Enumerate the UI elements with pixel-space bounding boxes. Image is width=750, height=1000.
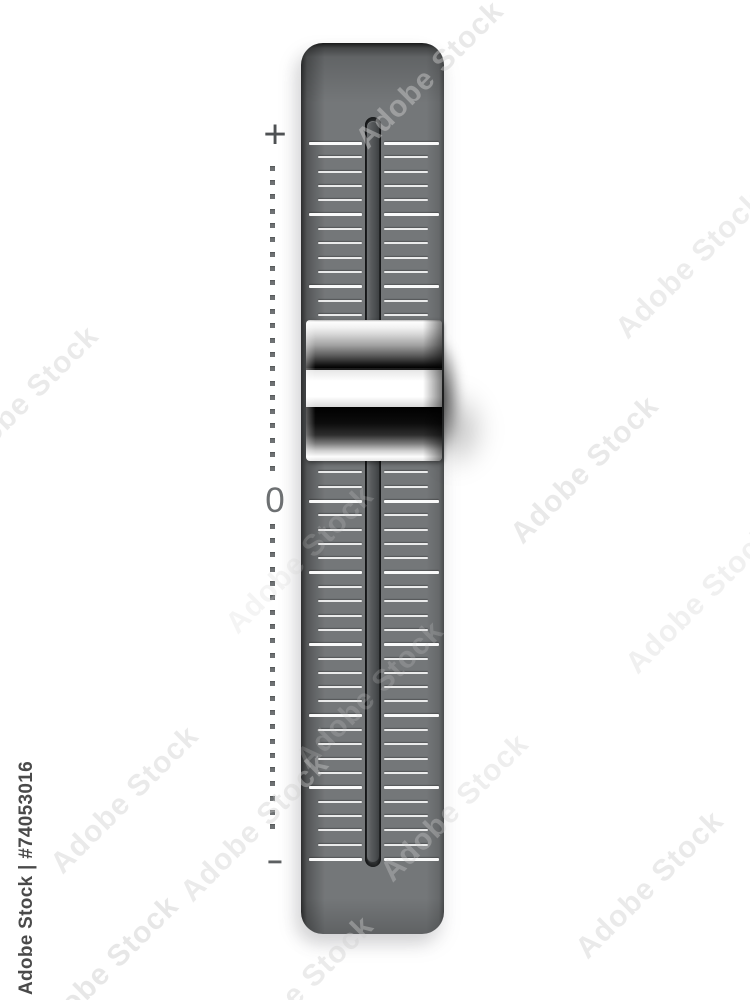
minor-tick bbox=[384, 844, 428, 846]
major-tick bbox=[384, 285, 439, 288]
zero-label: 0 bbox=[265, 481, 284, 521]
minor-tick bbox=[384, 257, 428, 259]
minor-tick bbox=[318, 600, 362, 602]
scale-dot bbox=[270, 423, 275, 428]
scale-dot bbox=[270, 524, 275, 529]
minor-tick bbox=[384, 772, 428, 774]
minor-tick bbox=[384, 156, 428, 158]
minor-tick bbox=[384, 557, 428, 559]
minor-tick bbox=[318, 486, 362, 488]
minor-tick bbox=[318, 557, 362, 559]
scale-dot bbox=[270, 581, 275, 586]
minor-tick bbox=[318, 672, 362, 674]
major-tick bbox=[384, 213, 439, 216]
scale-dot bbox=[270, 595, 275, 600]
minor-tick bbox=[318, 844, 362, 846]
scale-dot bbox=[270, 753, 275, 758]
scale-dot bbox=[270, 295, 275, 300]
stock-image-canvas: + 0 − Adobe StockAdobe StockAdobe StockA… bbox=[0, 0, 750, 1000]
scale-dot bbox=[270, 309, 275, 314]
scale-dot bbox=[270, 781, 275, 786]
major-tick bbox=[309, 786, 362, 789]
major-tick bbox=[309, 643, 362, 646]
scale-dot bbox=[270, 209, 275, 214]
minor-tick bbox=[384, 185, 428, 187]
scale-dot bbox=[270, 395, 275, 400]
adobe-stock-watermark: Adobe Stock bbox=[24, 889, 185, 1000]
scale-dot bbox=[270, 466, 275, 471]
knob-cast-shadow bbox=[437, 325, 489, 475]
major-tick bbox=[309, 714, 362, 717]
minor-tick bbox=[318, 629, 362, 631]
adobe-stock-watermark: Adobe Stock bbox=[569, 804, 730, 965]
scale-dot bbox=[270, 810, 275, 815]
minor-tick bbox=[384, 729, 428, 731]
scale-dot bbox=[270, 638, 275, 643]
minor-tick bbox=[384, 801, 428, 803]
scale-dot bbox=[270, 338, 275, 343]
scale-dot bbox=[270, 252, 275, 257]
scale-dot bbox=[270, 767, 275, 772]
fader-knob-handle[interactable] bbox=[306, 320, 442, 461]
minor-tick bbox=[384, 543, 428, 545]
minor-tick bbox=[384, 629, 428, 631]
minor-tick bbox=[318, 314, 362, 316]
scale-dot bbox=[270, 223, 275, 228]
scale-dot bbox=[270, 824, 275, 829]
minor-tick bbox=[384, 758, 428, 760]
minus-label: − bbox=[267, 847, 282, 878]
minor-tick bbox=[318, 686, 362, 688]
scale-dot bbox=[270, 696, 275, 701]
scale-dot bbox=[270, 194, 275, 199]
major-tick bbox=[309, 500, 362, 503]
scale-dot bbox=[270, 323, 275, 328]
minor-tick bbox=[384, 228, 428, 230]
scale-dot bbox=[270, 724, 275, 729]
scale-dot bbox=[270, 538, 275, 543]
minor-tick bbox=[318, 729, 362, 731]
minor-tick bbox=[318, 199, 362, 201]
scale-dot bbox=[270, 280, 275, 285]
minor-tick bbox=[318, 185, 362, 187]
major-tick bbox=[309, 285, 362, 288]
scale-dot bbox=[270, 180, 275, 185]
minor-tick bbox=[384, 600, 428, 602]
major-tick bbox=[384, 142, 439, 145]
plus-label: + bbox=[263, 113, 286, 158]
minor-tick bbox=[384, 199, 428, 201]
scale-dot bbox=[270, 438, 275, 443]
scale-dot bbox=[270, 681, 275, 686]
knob-chrome-sheen bbox=[306, 320, 442, 461]
scale-dot bbox=[270, 166, 275, 171]
scale-dot bbox=[270, 739, 275, 744]
scale-dot bbox=[270, 352, 275, 357]
minor-tick bbox=[318, 758, 362, 760]
major-tick bbox=[384, 500, 439, 503]
minor-tick bbox=[384, 514, 428, 516]
minor-tick bbox=[318, 156, 362, 158]
scale-dot bbox=[270, 409, 275, 414]
scale-dot bbox=[270, 366, 275, 371]
adobe-stock-watermark: Adobe Stock bbox=[0, 319, 106, 480]
major-tick bbox=[309, 142, 362, 145]
scale-dot bbox=[270, 266, 275, 271]
minor-tick bbox=[384, 486, 428, 488]
minor-tick bbox=[318, 615, 362, 617]
scale-dot bbox=[270, 567, 275, 572]
minor-tick bbox=[384, 615, 428, 617]
major-tick bbox=[309, 213, 362, 216]
fader-rail bbox=[367, 121, 379, 863]
minor-tick bbox=[318, 772, 362, 774]
minor-tick bbox=[318, 242, 362, 244]
adobe-stock-watermark: Adobe Stock bbox=[619, 519, 750, 680]
minor-tick bbox=[384, 171, 428, 173]
scale-dot bbox=[270, 796, 275, 801]
minor-tick bbox=[384, 242, 428, 244]
adobe-stock-watermark: Adobe Stock bbox=[44, 719, 205, 880]
scale-dot bbox=[270, 452, 275, 457]
minor-tick bbox=[318, 171, 362, 173]
major-tick bbox=[384, 714, 439, 717]
minor-tick bbox=[384, 815, 428, 817]
minor-tick bbox=[384, 314, 428, 316]
scale-dot bbox=[270, 653, 275, 658]
minor-tick bbox=[318, 514, 362, 516]
minor-tick bbox=[318, 658, 362, 660]
scale-dot bbox=[270, 237, 275, 242]
adobe-stock-watermark: Adobe Stock bbox=[609, 184, 750, 345]
major-tick bbox=[384, 858, 439, 861]
minor-tick bbox=[384, 672, 428, 674]
minor-tick bbox=[384, 686, 428, 688]
watermark-id-label: Adobe Stock | #74053016 bbox=[16, 761, 38, 995]
scale-dot bbox=[270, 610, 275, 615]
minor-tick bbox=[318, 228, 362, 230]
minor-tick bbox=[318, 815, 362, 817]
minor-tick bbox=[384, 586, 428, 588]
minor-tick bbox=[384, 529, 428, 531]
minor-tick bbox=[318, 543, 362, 545]
major-tick bbox=[384, 571, 439, 574]
minor-tick bbox=[384, 300, 428, 302]
scale-dot bbox=[270, 667, 275, 672]
major-tick bbox=[384, 786, 439, 789]
minor-tick bbox=[318, 300, 362, 302]
minor-tick bbox=[384, 658, 428, 660]
scale-dot bbox=[270, 624, 275, 629]
minor-tick bbox=[318, 586, 362, 588]
scale-dot bbox=[270, 552, 275, 557]
minor-tick bbox=[318, 529, 362, 531]
minor-tick bbox=[318, 801, 362, 803]
major-tick bbox=[309, 571, 362, 574]
scale-dot bbox=[270, 710, 275, 715]
major-tick bbox=[309, 858, 362, 861]
major-tick bbox=[384, 643, 439, 646]
adobe-stock-watermark: Adobe Stock bbox=[504, 389, 665, 550]
minor-tick bbox=[384, 271, 428, 273]
minor-tick bbox=[318, 257, 362, 259]
minor-tick bbox=[318, 271, 362, 273]
scale-dot bbox=[270, 381, 275, 386]
